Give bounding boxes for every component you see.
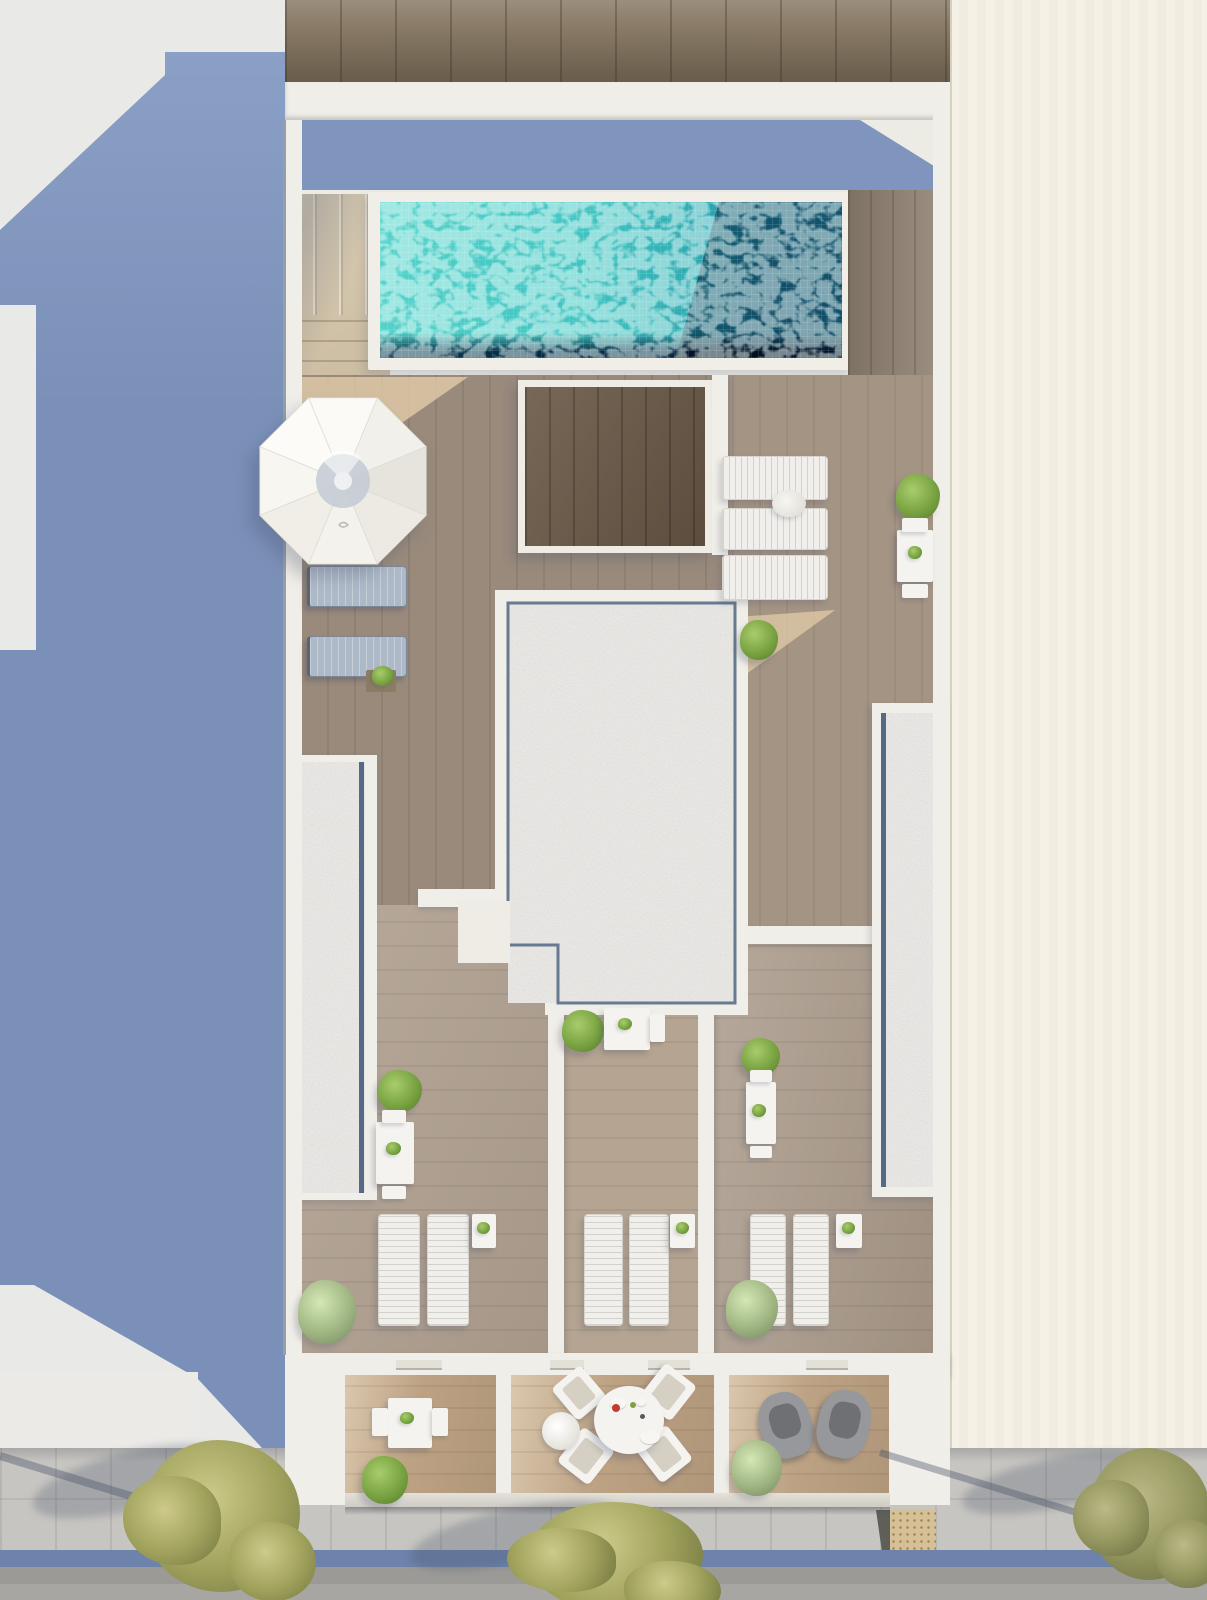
plant-tiny <box>477 1222 490 1234</box>
chair-tab <box>750 1070 772 1082</box>
plant-tiny <box>842 1222 855 1234</box>
plate <box>636 1398 646 1406</box>
plant-pale <box>726 1280 778 1338</box>
lounger-white-v <box>793 1214 829 1326</box>
dot-dark <box>640 1414 645 1419</box>
plant <box>740 620 778 660</box>
lounger-white-h <box>722 456 828 500</box>
dot-green <box>630 1402 636 1408</box>
tree <box>528 1502 703 1600</box>
furniture-layer <box>0 0 1207 1600</box>
plant-tiny <box>386 1142 401 1155</box>
door-tab <box>806 1360 848 1370</box>
chair-tab <box>650 1014 665 1042</box>
door-tab <box>396 1360 442 1370</box>
lounger-white-h <box>722 555 828 600</box>
chair-tab <box>750 1146 772 1158</box>
parasol-umbrella <box>243 373 453 593</box>
chair-tab <box>372 1408 388 1436</box>
rooftop-render-scene <box>0 0 1207 1600</box>
lounger-white-v <box>378 1214 420 1326</box>
lounger-white-h <box>722 508 828 550</box>
plant <box>362 1456 408 1504</box>
armchair <box>811 1385 876 1462</box>
plant-pale <box>732 1440 782 1496</box>
lounger-white-v <box>427 1214 469 1326</box>
chair-tab <box>902 584 928 598</box>
plate <box>640 1430 660 1444</box>
plant <box>562 1010 604 1052</box>
chair-tab <box>902 518 928 532</box>
chair-tab <box>432 1408 448 1436</box>
plant <box>896 474 940 520</box>
tree <box>142 1440 300 1592</box>
towel-table <box>772 490 806 517</box>
plant-tiny <box>908 546 922 559</box>
pouf <box>542 1412 580 1450</box>
table-round <box>594 1386 664 1454</box>
plant-tiny <box>618 1018 632 1030</box>
plant-tiny <box>372 666 394 686</box>
lounger-white-v <box>629 1214 669 1326</box>
lounger-white-v <box>584 1214 623 1326</box>
plant-tiny <box>752 1104 766 1117</box>
dot-red <box>612 1404 620 1412</box>
plant-pale <box>298 1280 356 1344</box>
chair-tab <box>382 1110 406 1123</box>
tree-dark <box>1088 1448 1207 1580</box>
plant-tiny <box>400 1412 414 1424</box>
plant <box>378 1070 422 1112</box>
plant-tiny <box>676 1222 689 1234</box>
chair-tab <box>382 1186 406 1199</box>
